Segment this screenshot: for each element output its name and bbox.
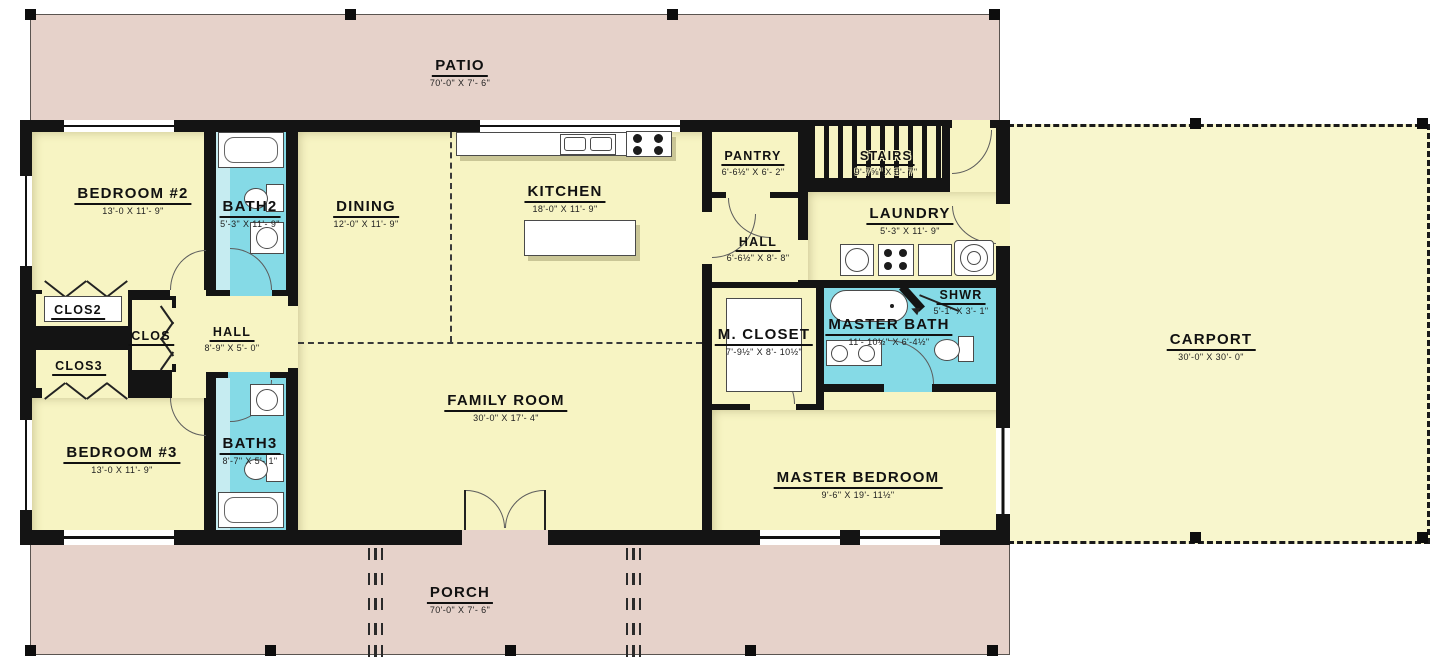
window <box>20 176 32 266</box>
room-dims: 30'-0" X 30'- 0" <box>1167 353 1256 362</box>
room-label-hall-lower: HALL 8'-9" X 5'- 0" <box>205 324 260 354</box>
room-name: MASTER BEDROOM <box>774 470 943 489</box>
room-dims: 5'-3" X 11'- 9" <box>220 220 281 229</box>
door-leaf-french-left <box>464 490 466 530</box>
room-label-masterbed: MASTER BEDROOM 9'-6" X 19'- 11½" <box>774 470 943 500</box>
porch-post <box>987 645 998 656</box>
room-name: PORCH <box>427 585 493 604</box>
room-name: M. CLOSET <box>715 327 813 346</box>
room-label-bedroom2: BEDROOM #2 13'-0 X 11'- 9" <box>74 186 191 216</box>
room-label-clos3: CLOS3 <box>52 358 106 376</box>
room-name: CARPORT <box>1167 332 1256 351</box>
dashed-divider-dining-kitchen <box>450 132 452 342</box>
opening-hall-family <box>288 306 298 368</box>
patio-area <box>30 14 1000 126</box>
porch-column-hatch <box>626 598 641 610</box>
door-leaf-french-right <box>544 490 546 530</box>
porch-column-hatch <box>368 598 383 610</box>
room-name: HALL <box>210 326 254 342</box>
window <box>760 530 840 545</box>
carport-post <box>1417 118 1428 129</box>
room-dims: 18'-0" X 11'- 9" <box>524 205 605 214</box>
porch-post <box>265 645 276 656</box>
kitchen-island <box>524 220 636 256</box>
room-label-pantry: PANTRY 6'-6½" X 6'- 2" <box>721 148 784 178</box>
porch-column-hatch <box>368 623 383 635</box>
room-label-clos2: CLOS2 <box>51 302 105 320</box>
opening-bedroom2-door <box>170 290 206 296</box>
room-label-kitchen: KITCHEN 18'-0" X 11'- 9" <box>524 184 605 214</box>
dashed-divider-family <box>298 342 702 344</box>
window <box>996 428 1010 514</box>
patio-post <box>345 9 356 20</box>
room-dims: 13'-0 X 11'- 9" <box>63 466 180 475</box>
range-burner <box>899 249 907 257</box>
room-dims: 70'-0" X 7'- 6" <box>430 79 490 88</box>
opening-hall-kitchen <box>702 212 712 264</box>
room-name: BATH3 <box>220 436 281 455</box>
window <box>64 120 174 132</box>
patio-post <box>989 9 1000 20</box>
room-label-laundry: LAUNDRY 5'-3" X 11'- 9" <box>866 206 953 236</box>
stove-burner <box>654 134 663 143</box>
range-burner <box>899 262 907 270</box>
room-label-hall-upper: HALL 6'-6½" X 8'- 8" <box>727 234 790 264</box>
room-name: BEDROOM #3 <box>63 445 180 464</box>
range-burner <box>884 249 892 257</box>
laundry-counter <box>918 244 952 276</box>
room-label-mcloset: M. CLOSET 7'-9½" X 8'- 10½" <box>715 327 813 357</box>
porch-column-hatch <box>626 645 641 657</box>
opening-masterbath-door <box>884 384 932 392</box>
room-label-dining: DINING 12'-0" X 11'- 9" <box>333 199 399 229</box>
room-label-patio: PATIO 70'-0" X 7'- 6" <box>430 58 490 88</box>
room-label-clos: CLOS <box>128 328 174 346</box>
opening-bath3-door <box>228 372 270 378</box>
porch-column-hatch <box>626 548 641 560</box>
porch-column-hatch <box>368 573 383 585</box>
water-heater-ring <box>967 251 981 265</box>
window <box>20 420 32 510</box>
floor-plan-canvas: PATIO 70'-0" X 7'- 6" BEDROOM #2 13'-0 X… <box>0 0 1445 670</box>
room-name: STAIRS <box>857 150 915 166</box>
porch-post <box>25 645 36 656</box>
masterbath-toilet-tank <box>958 336 974 362</box>
room-dims: 5'-1" X 3'- 1" <box>934 307 989 316</box>
room-dims: 30'-0" X 17'- 4" <box>444 414 567 423</box>
room-dims: 8'-7" X 5'- 1" <box>220 457 281 466</box>
opening-hall-laundry <box>798 240 808 280</box>
patio-post <box>25 9 36 20</box>
carport-post <box>1190 532 1201 543</box>
room-dims: 8'-9" X 5'- 0" <box>205 344 260 353</box>
room-name: LAUNDRY <box>866 206 953 225</box>
room-name: PANTRY <box>721 150 784 166</box>
room-name: CLOS2 <box>51 304 105 320</box>
room-label-stairs: STAIRS 9'-7⅝" X 3'- 7" <box>855 148 918 178</box>
kitchen-sink-basin <box>564 137 586 151</box>
room-dims: 9'-6" X 19'- 11½" <box>774 491 943 500</box>
room-dims: 6'-6½" X 6'- 2" <box>721 168 784 177</box>
opening-bedroom3-door <box>172 372 206 398</box>
room-fill-living-open <box>298 132 702 530</box>
room-name: BEDROOM #2 <box>74 186 191 205</box>
room-name: HALL <box>736 236 780 252</box>
range-burner <box>884 262 892 270</box>
room-dims: 5'-3" X 11'- 9" <box>866 227 953 236</box>
bath3-tub-basin <box>224 497 278 523</box>
room-dims: 70'-0" X 7'- 6" <box>427 606 493 615</box>
porch-column-hatch <box>368 548 383 560</box>
opening-carport-door <box>996 204 1010 246</box>
carport-post <box>1417 532 1428 543</box>
room-name: BATH2 <box>220 199 281 218</box>
laundry-range <box>878 244 914 276</box>
masterbath-tub-drain <box>890 304 894 308</box>
bath3-sink <box>256 389 278 411</box>
room-label-shwr: SHWR 5'-1" X 3'- 1" <box>934 287 989 317</box>
room-name: CLOS <box>128 330 174 346</box>
room-name: SHWR <box>936 289 985 305</box>
stove-burner <box>633 146 642 155</box>
room-name: FAMILY ROOM <box>444 393 567 412</box>
window <box>860 530 940 545</box>
room-dims: 13'-0 X 11'- 9" <box>74 207 191 216</box>
kitchen-sink-basin <box>590 137 612 151</box>
room-label-carport: CARPORT 30'-0" X 30'- 0" <box>1167 332 1256 362</box>
room-dims: 9'-7⅝" X 3'- 7" <box>855 168 918 177</box>
opening-patio-door <box>952 120 990 128</box>
room-label-bath3: BATH3 8'-7" X 5'- 1" <box>220 436 281 466</box>
bath2-sink <box>256 227 278 249</box>
room-name: DINING <box>333 199 399 218</box>
window <box>64 530 174 545</box>
opening-mcloset-door <box>750 404 796 410</box>
masterbath-sink <box>831 345 848 362</box>
porch-area <box>30 540 1010 655</box>
carport-post <box>1190 118 1201 129</box>
opening-french-doors <box>462 530 548 545</box>
porch-post <box>505 645 516 656</box>
room-label-masterbath: MASTER BATH 11'- 10½" X 6'-4½" <box>825 317 952 347</box>
porch-column-hatch <box>368 645 383 657</box>
porch-column-hatch <box>626 623 641 635</box>
room-name: MASTER BATH <box>825 317 952 336</box>
room-label-bath2: BATH2 5'-3" X 11'- 9" <box>220 199 281 229</box>
stove-burner <box>654 146 663 155</box>
room-label-family: FAMILY ROOM 30'-0" X 17'- 4" <box>444 393 567 423</box>
room-name: CLOS3 <box>52 360 106 376</box>
laundry-washer-door <box>845 248 869 272</box>
room-dims: 12'-0" X 11'- 9" <box>333 220 399 229</box>
bath2-tub-basin <box>224 137 278 163</box>
opening-bath2-door <box>230 290 272 296</box>
porch-post <box>745 645 756 656</box>
room-name: PATIO <box>432 58 488 77</box>
patio-post <box>667 9 678 20</box>
room-dims: 6'-6½" X 8'- 8" <box>727 254 790 263</box>
porch-column-hatch <box>626 573 641 585</box>
room-name: KITCHEN <box>524 184 605 203</box>
masterbath-sink <box>858 345 875 362</box>
room-label-bedroom3: BEDROOM #3 13'-0 X 11'- 9" <box>63 445 180 475</box>
room-label-porch: PORCH 70'-0" X 7'- 6" <box>427 585 493 615</box>
room-dims: 11'- 10½" X 6'-4½" <box>825 338 952 347</box>
stove-burner <box>633 134 642 143</box>
room-dims: 7'-9½" X 8'- 10½" <box>715 348 813 357</box>
